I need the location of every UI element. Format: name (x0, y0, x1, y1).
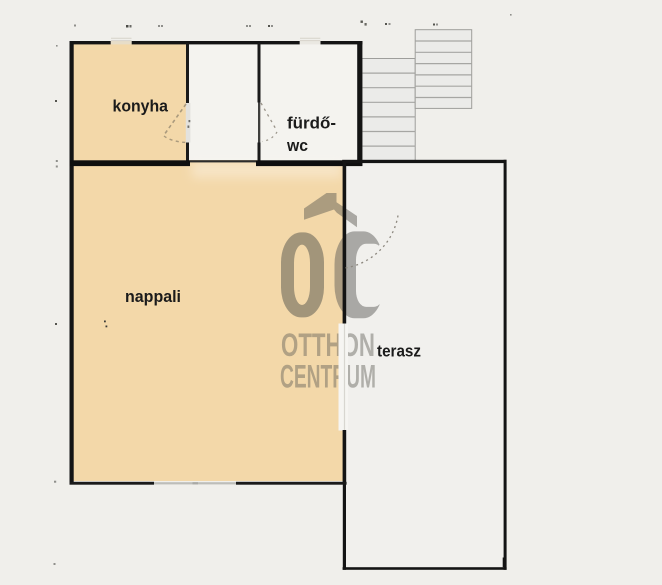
svg-text:CENTRUM: CENTRUM (280, 359, 376, 395)
svg-text:konyha: konyha (113, 97, 169, 116)
svg-text:wc: wc (286, 136, 308, 155)
svg-text:terasz: terasz (377, 342, 421, 361)
svg-text:nappali: nappali (125, 287, 181, 306)
svg-text:fürdő-: fürdő- (287, 114, 336, 133)
